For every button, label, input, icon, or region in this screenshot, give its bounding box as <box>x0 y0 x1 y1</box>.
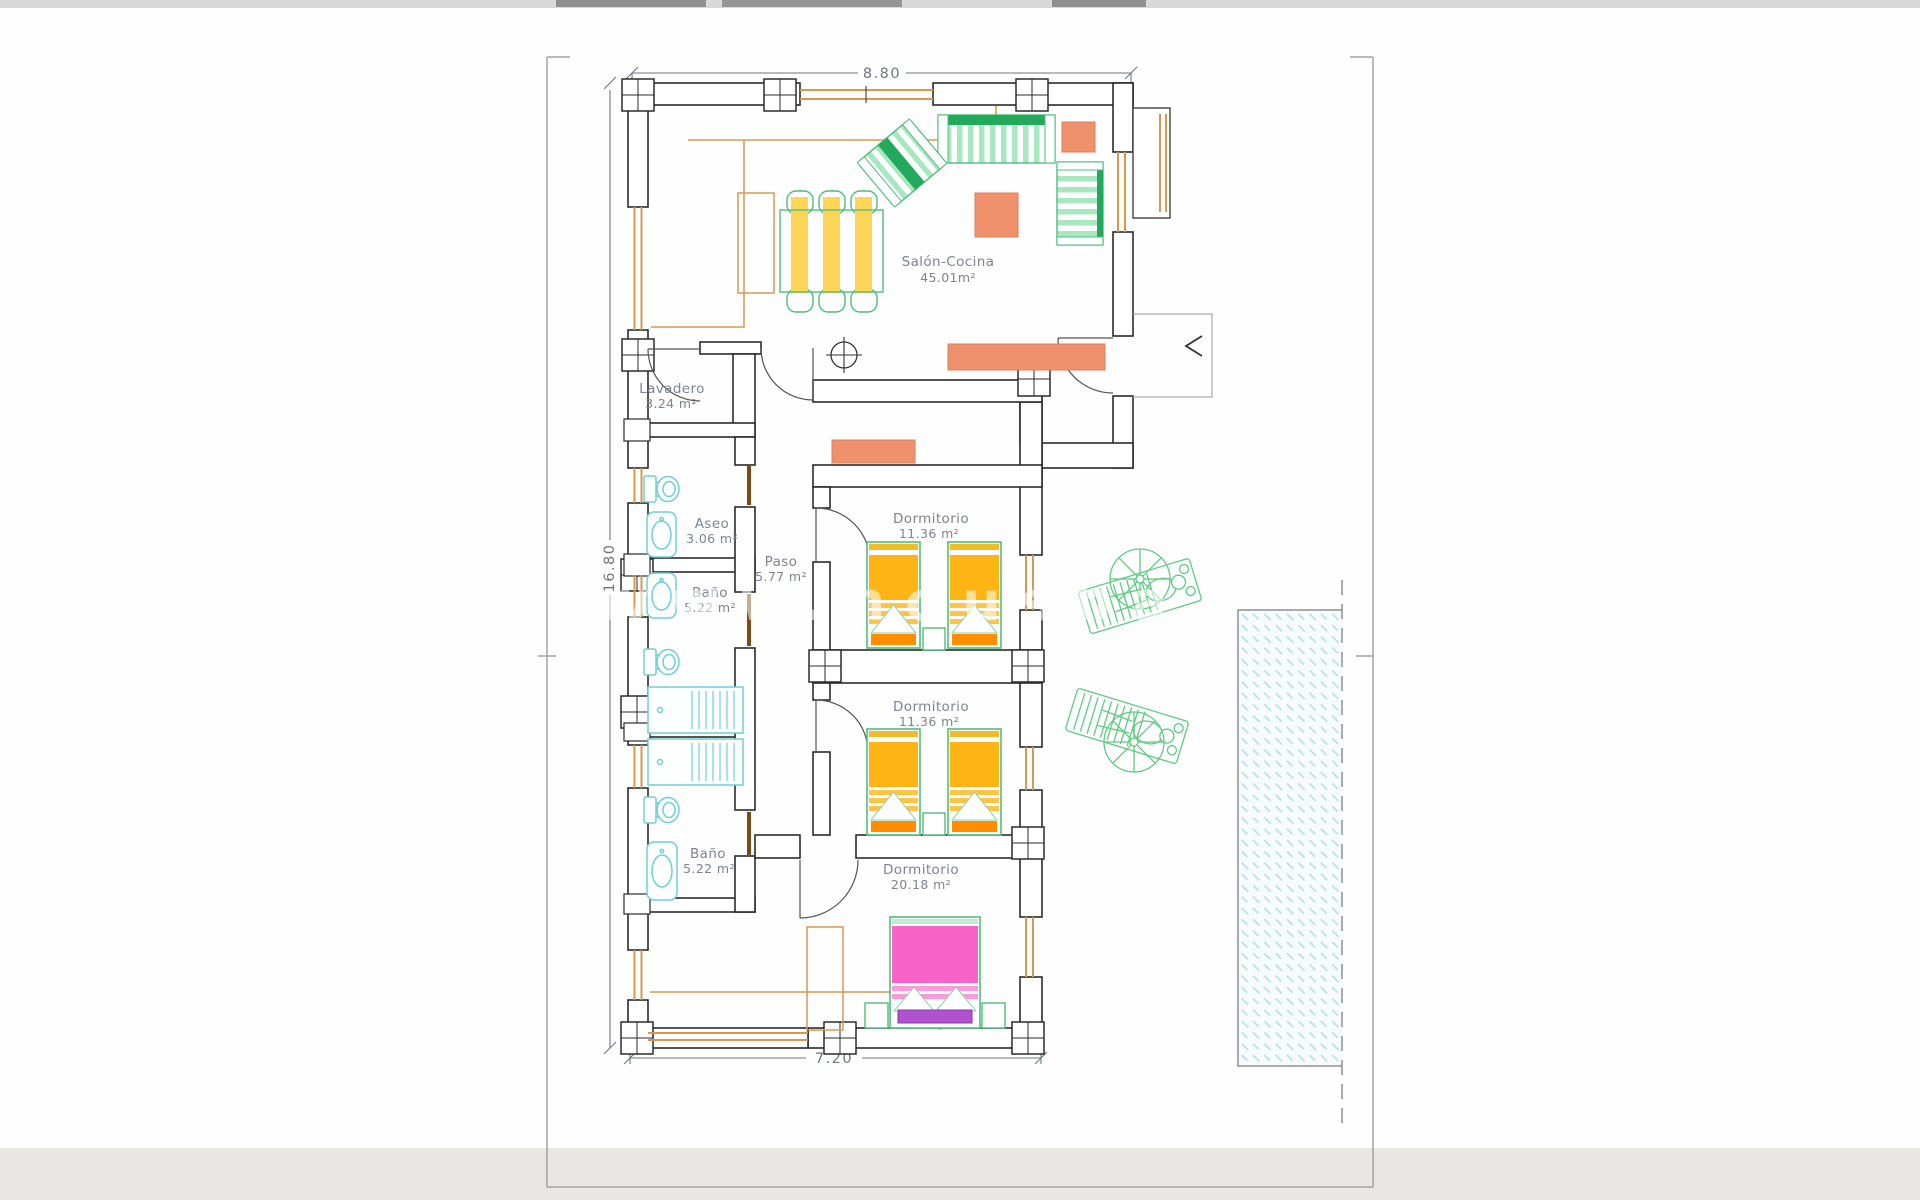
coffee-table <box>975 193 1018 237</box>
shower-bano-top <box>648 687 743 733</box>
side-table <box>1062 122 1095 152</box>
door-dormitorio3 <box>800 860 858 918</box>
sofa-vertical <box>1057 162 1103 245</box>
shower-bano-bottom <box>648 739 743 785</box>
room-area: 3.06 m² <box>686 531 738 546</box>
room-name: Dormitorio <box>883 862 959 878</box>
room-label-aseo: Aseo 3.06 m² <box>686 516 738 546</box>
dimension-left: 16.80 <box>602 77 618 1054</box>
floor-plan-canvas: 8.80 16.80 7.20 <box>0 0 1920 1200</box>
bay-window <box>1133 108 1170 218</box>
room-name: Salón-Cocina <box>902 254 995 270</box>
sink-bano-bottom <box>647 842 677 900</box>
lamp-symbol-icon <box>826 337 862 373</box>
room-name: Dormitorio <box>893 511 969 527</box>
living-room-furniture <box>780 115 1105 370</box>
toilet-aseo <box>644 476 679 502</box>
room-label-dormitorio2: Dormitorio 11.36 m² <box>893 699 969 729</box>
room-name: Lavadero <box>639 381 705 397</box>
room-area: 20.18 m² <box>891 877 951 892</box>
room-label-dormitorio3: Dormitorio 20.18 m² <box>883 862 959 892</box>
sink-aseo <box>647 512 676 557</box>
room-label-dormitorio1: Dormitorio 11.36 m² <box>893 511 969 541</box>
room-name: Dormitorio <box>893 699 969 715</box>
room-label-salon: Salón-Cocina 45.01m² <box>902 254 995 285</box>
dimension-top: 8.80 <box>626 66 1137 84</box>
kitchen-bar-counter <box>948 344 1105 370</box>
single-bed <box>867 729 920 835</box>
table-runner <box>823 197 840 293</box>
door-dormitorio2 <box>816 700 868 752</box>
toilet-bano-bottom <box>644 797 679 823</box>
room-area: 5.22 m² <box>683 861 735 876</box>
room-label-lavadero: Lavadero 3.24 m² <box>639 381 705 411</box>
entrance-porch <box>1133 314 1212 397</box>
toilet-bano-top <box>644 649 679 675</box>
sun-lounger <box>1065 688 1189 764</box>
room-area: 11.36 m² <box>899 526 959 541</box>
double-bed <box>890 917 980 1028</box>
room-area: 3.24 m² <box>645 396 697 411</box>
single-bed <box>948 729 1001 835</box>
door-salon-hall <box>761 348 813 400</box>
room-area: 45.01m² <box>920 270 976 285</box>
wall-junction <box>624 419 650 441</box>
room-name: Baño <box>690 846 726 862</box>
nightstand <box>923 813 945 835</box>
dimension-top-label: 8.80 <box>863 66 901 82</box>
nightstand <box>982 1003 1005 1028</box>
room-name: Paso <box>765 554 798 570</box>
wall-junction <box>624 723 650 741</box>
hall-wardrobe <box>832 440 915 463</box>
sofa-long <box>938 115 1055 163</box>
dining-set <box>780 191 883 312</box>
watermark-text: www.nousha <box>600 570 1188 633</box>
table-runner <box>855 197 872 293</box>
nightstand <box>865 1003 888 1028</box>
floor-plan-page: 8.80 16.80 7.20 <box>0 0 1920 1200</box>
parasol-icon <box>1104 712 1164 772</box>
swimming-pool <box>1238 580 1342 1128</box>
table-runner <box>791 197 808 293</box>
room-name: Aseo <box>695 516 729 532</box>
door-dormitorio1 <box>816 508 870 562</box>
room-area: 11.36 m² <box>899 714 959 729</box>
wall-junction <box>624 894 650 914</box>
entrance-arrow-icon <box>1186 336 1202 356</box>
room-label-bano-bottom: Baño 5.22 m² <box>683 846 735 876</box>
